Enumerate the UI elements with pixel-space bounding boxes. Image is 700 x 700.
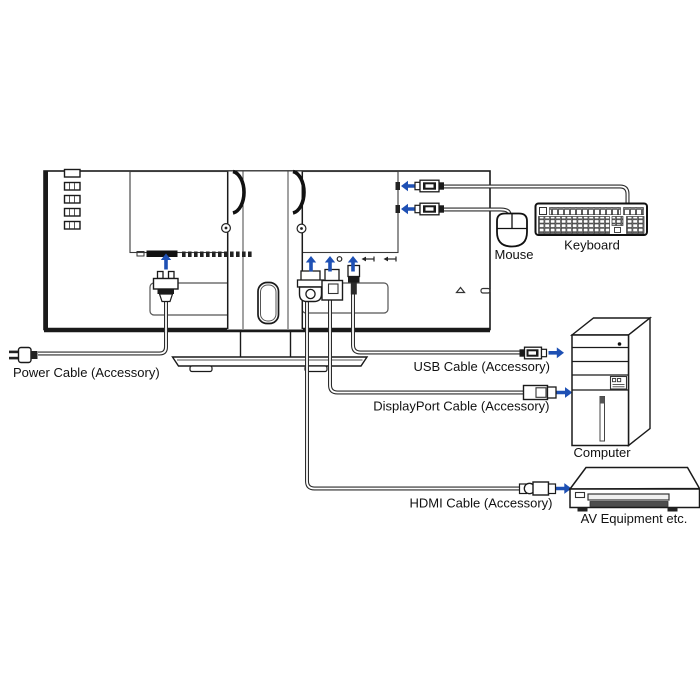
arrow-right-usb-to-computer: [549, 347, 565, 358]
label-hdmi-cable: HDMI Cable (Accessory): [409, 496, 552, 511]
usb-a-plug-keyboard: [415, 180, 444, 192]
displayport-plug-connector: [322, 270, 343, 301]
stand-column: [222, 172, 306, 330]
label-av-equipment: AV Equipment etc.: [581, 511, 688, 526]
keyboard-illustration: [536, 204, 648, 236]
front-panel-bar: [590, 502, 668, 507]
label-mouse: Mouse: [494, 247, 533, 262]
av-power-button: [576, 493, 585, 498]
label-power-cable: Power Cable (Accessory): [13, 365, 160, 380]
hdmi-plug-to-av: [520, 482, 556, 495]
stand-screw-right: [297, 224, 306, 233]
main-key-block: [539, 217, 610, 234]
av-equipment-box: [570, 468, 700, 512]
numpad-block: [627, 217, 645, 234]
monitor-connection-diagram: Power Cable (Accessory) USB Cable (Acces…: [0, 0, 700, 700]
floppy-drive: [611, 377, 627, 390]
label-displayport-cable: DisplayPort Cable (Accessory): [373, 399, 549, 414]
computer-tower: [572, 318, 650, 446]
power-wall-plug: [9, 348, 38, 363]
esc-key: [540, 208, 547, 215]
arrow-right-dp-to-computer: [557, 387, 573, 398]
label-computer: Computer: [573, 445, 631, 460]
hdmi-plug-connector: [298, 271, 324, 302]
arrow-right-hdmi-to-av: [556, 483, 572, 494]
power-led: [618, 342, 622, 346]
disc-tray: [588, 494, 669, 500]
diagram-canvas: Power Cable (Accessory) USB Cable (Acces…: [0, 0, 700, 700]
ac-inlet-slot: [147, 251, 178, 258]
displayport-plug-to-computer: [524, 386, 557, 400]
usb-a-plug-to-computer: [520, 347, 547, 359]
label-keyboard: Keyboard: [564, 238, 620, 253]
monitor-back-illustration: [44, 170, 490, 331]
nav-key-block: [612, 217, 623, 226]
mouse-illustration: [497, 214, 527, 247]
stand-screw-left: [222, 224, 231, 233]
usb-a-plug-mouse: [415, 203, 444, 215]
label-usb-cable: USB Cable (Accessory): [413, 359, 550, 374]
stand-base: [173, 332, 368, 372]
